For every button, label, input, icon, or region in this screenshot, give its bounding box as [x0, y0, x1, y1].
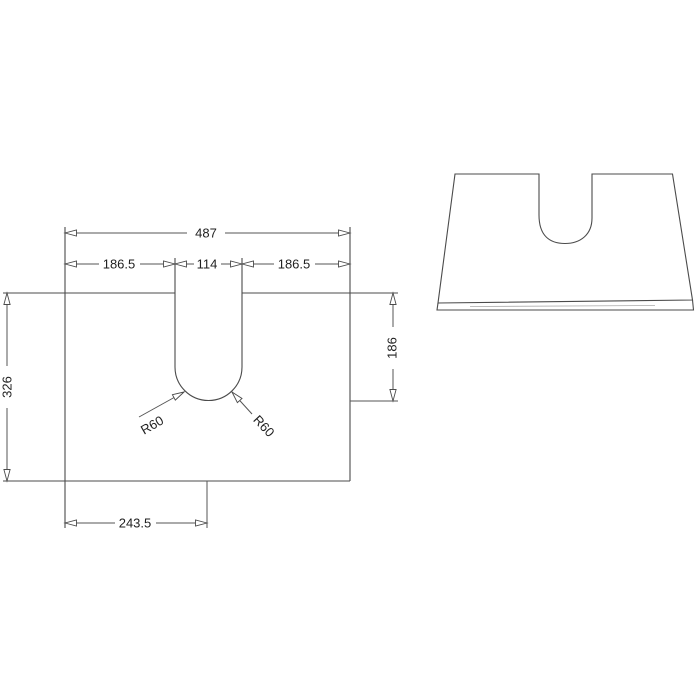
arrow-up-icon [4, 293, 10, 305]
arrow-right-icon [339, 230, 351, 236]
dim-left-to-cutout-far-edge: 243.5 [65, 516, 207, 531]
arrow-leader-icon [230, 390, 242, 403]
arrow-left-icon [65, 520, 77, 526]
dim-label-left-to-cutout: 186.5 [103, 257, 136, 272]
dim-label-overall-width: 487 [195, 226, 217, 241]
dim-label-cutout-to-right: 186.5 [278, 257, 311, 272]
dim-cutout-width: 114 [175, 257, 242, 272]
technical-drawing: 487 186.5 114 186.5 [0, 0, 700, 700]
cutout-u-outline [175, 258, 242, 401]
dim-overall-depth: 326 [0, 293, 15, 481]
dim-cutout-to-right: 186.5 [242, 257, 350, 272]
arrow-leader-icon [172, 389, 185, 400]
drawing-sheet: 487 186.5 114 186.5 [0, 0, 700, 700]
dim-label-overall-depth: 326 [0, 376, 15, 398]
dim-overall-width: 487 [65, 226, 350, 241]
plate-outline [3, 227, 398, 528]
dim-label-left-to-cutout-far-edge: 243.5 [119, 516, 152, 531]
arrow-up-icon [390, 293, 396, 305]
arrow-left-icon [65, 261, 77, 267]
perspective-view [437, 174, 694, 310]
radius-callout-right: R60 [230, 390, 278, 440]
dim-left-to-cutout: 186.5 [65, 257, 175, 272]
radius-callout-left: R60 [138, 389, 186, 437]
dim-cutout-depth: 186 [350, 293, 400, 401]
arrow-down-icon [4, 470, 10, 482]
arrow-right-icon [339, 261, 351, 267]
arrow-right-icon [196, 520, 208, 526]
dim-label-radius-right: R60 [250, 412, 277, 440]
arrow-left-icon [242, 261, 254, 267]
slab-top-face-outline [438, 174, 693, 303]
plan-view: 487 186.5 114 186.5 [0, 226, 400, 531]
arrow-left-icon [65, 230, 77, 236]
dim-label-radius-left: R60 [138, 413, 166, 438]
dim-label-cutout-width: 114 [197, 257, 218, 272]
arrow-left-icon [175, 261, 187, 267]
arrow-down-icon [390, 390, 396, 402]
slab-front-highlight-line [470, 306, 655, 307]
dim-label-cutout-depth: 186 [385, 337, 400, 359]
